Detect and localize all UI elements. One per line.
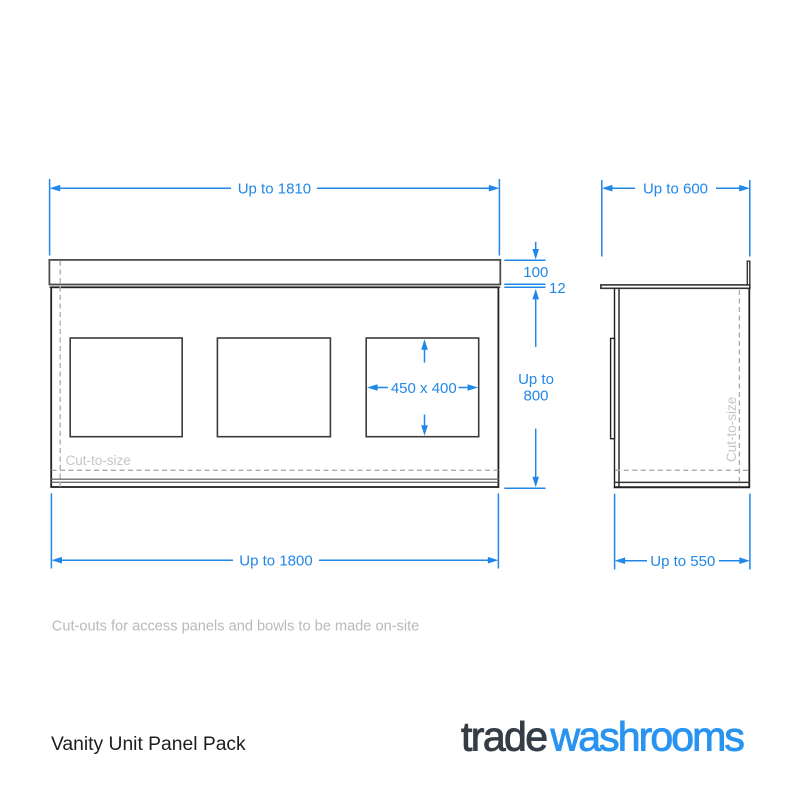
svg-text:100: 100 [523,264,548,281]
svg-text:trade: trade [461,713,546,759]
svg-text:12: 12 [549,280,566,297]
svg-text:Cut-outs for access panels and: Cut-outs for access panels and bowls to … [52,619,419,635]
svg-text:washrooms: washrooms [550,713,745,759]
svg-text:Up to 1800: Up to 1800 [239,553,312,570]
svg-text:Cut-to-size: Cut-to-size [724,397,739,462]
svg-text:Vanity Unit Panel Pack: Vanity Unit Panel Pack [51,734,246,755]
svg-text:Up to 1810: Up to 1810 [238,181,311,198]
svg-text:Up to: Up to [518,371,554,388]
svg-text:800: 800 [523,387,548,404]
svg-text:Up to 600: Up to 600 [643,181,708,198]
svg-text:Up to 550: Up to 550 [650,553,715,570]
svg-text:450 x 400: 450 x 400 [391,380,457,397]
svg-text:Cut-to-size: Cut-to-size [66,453,131,468]
